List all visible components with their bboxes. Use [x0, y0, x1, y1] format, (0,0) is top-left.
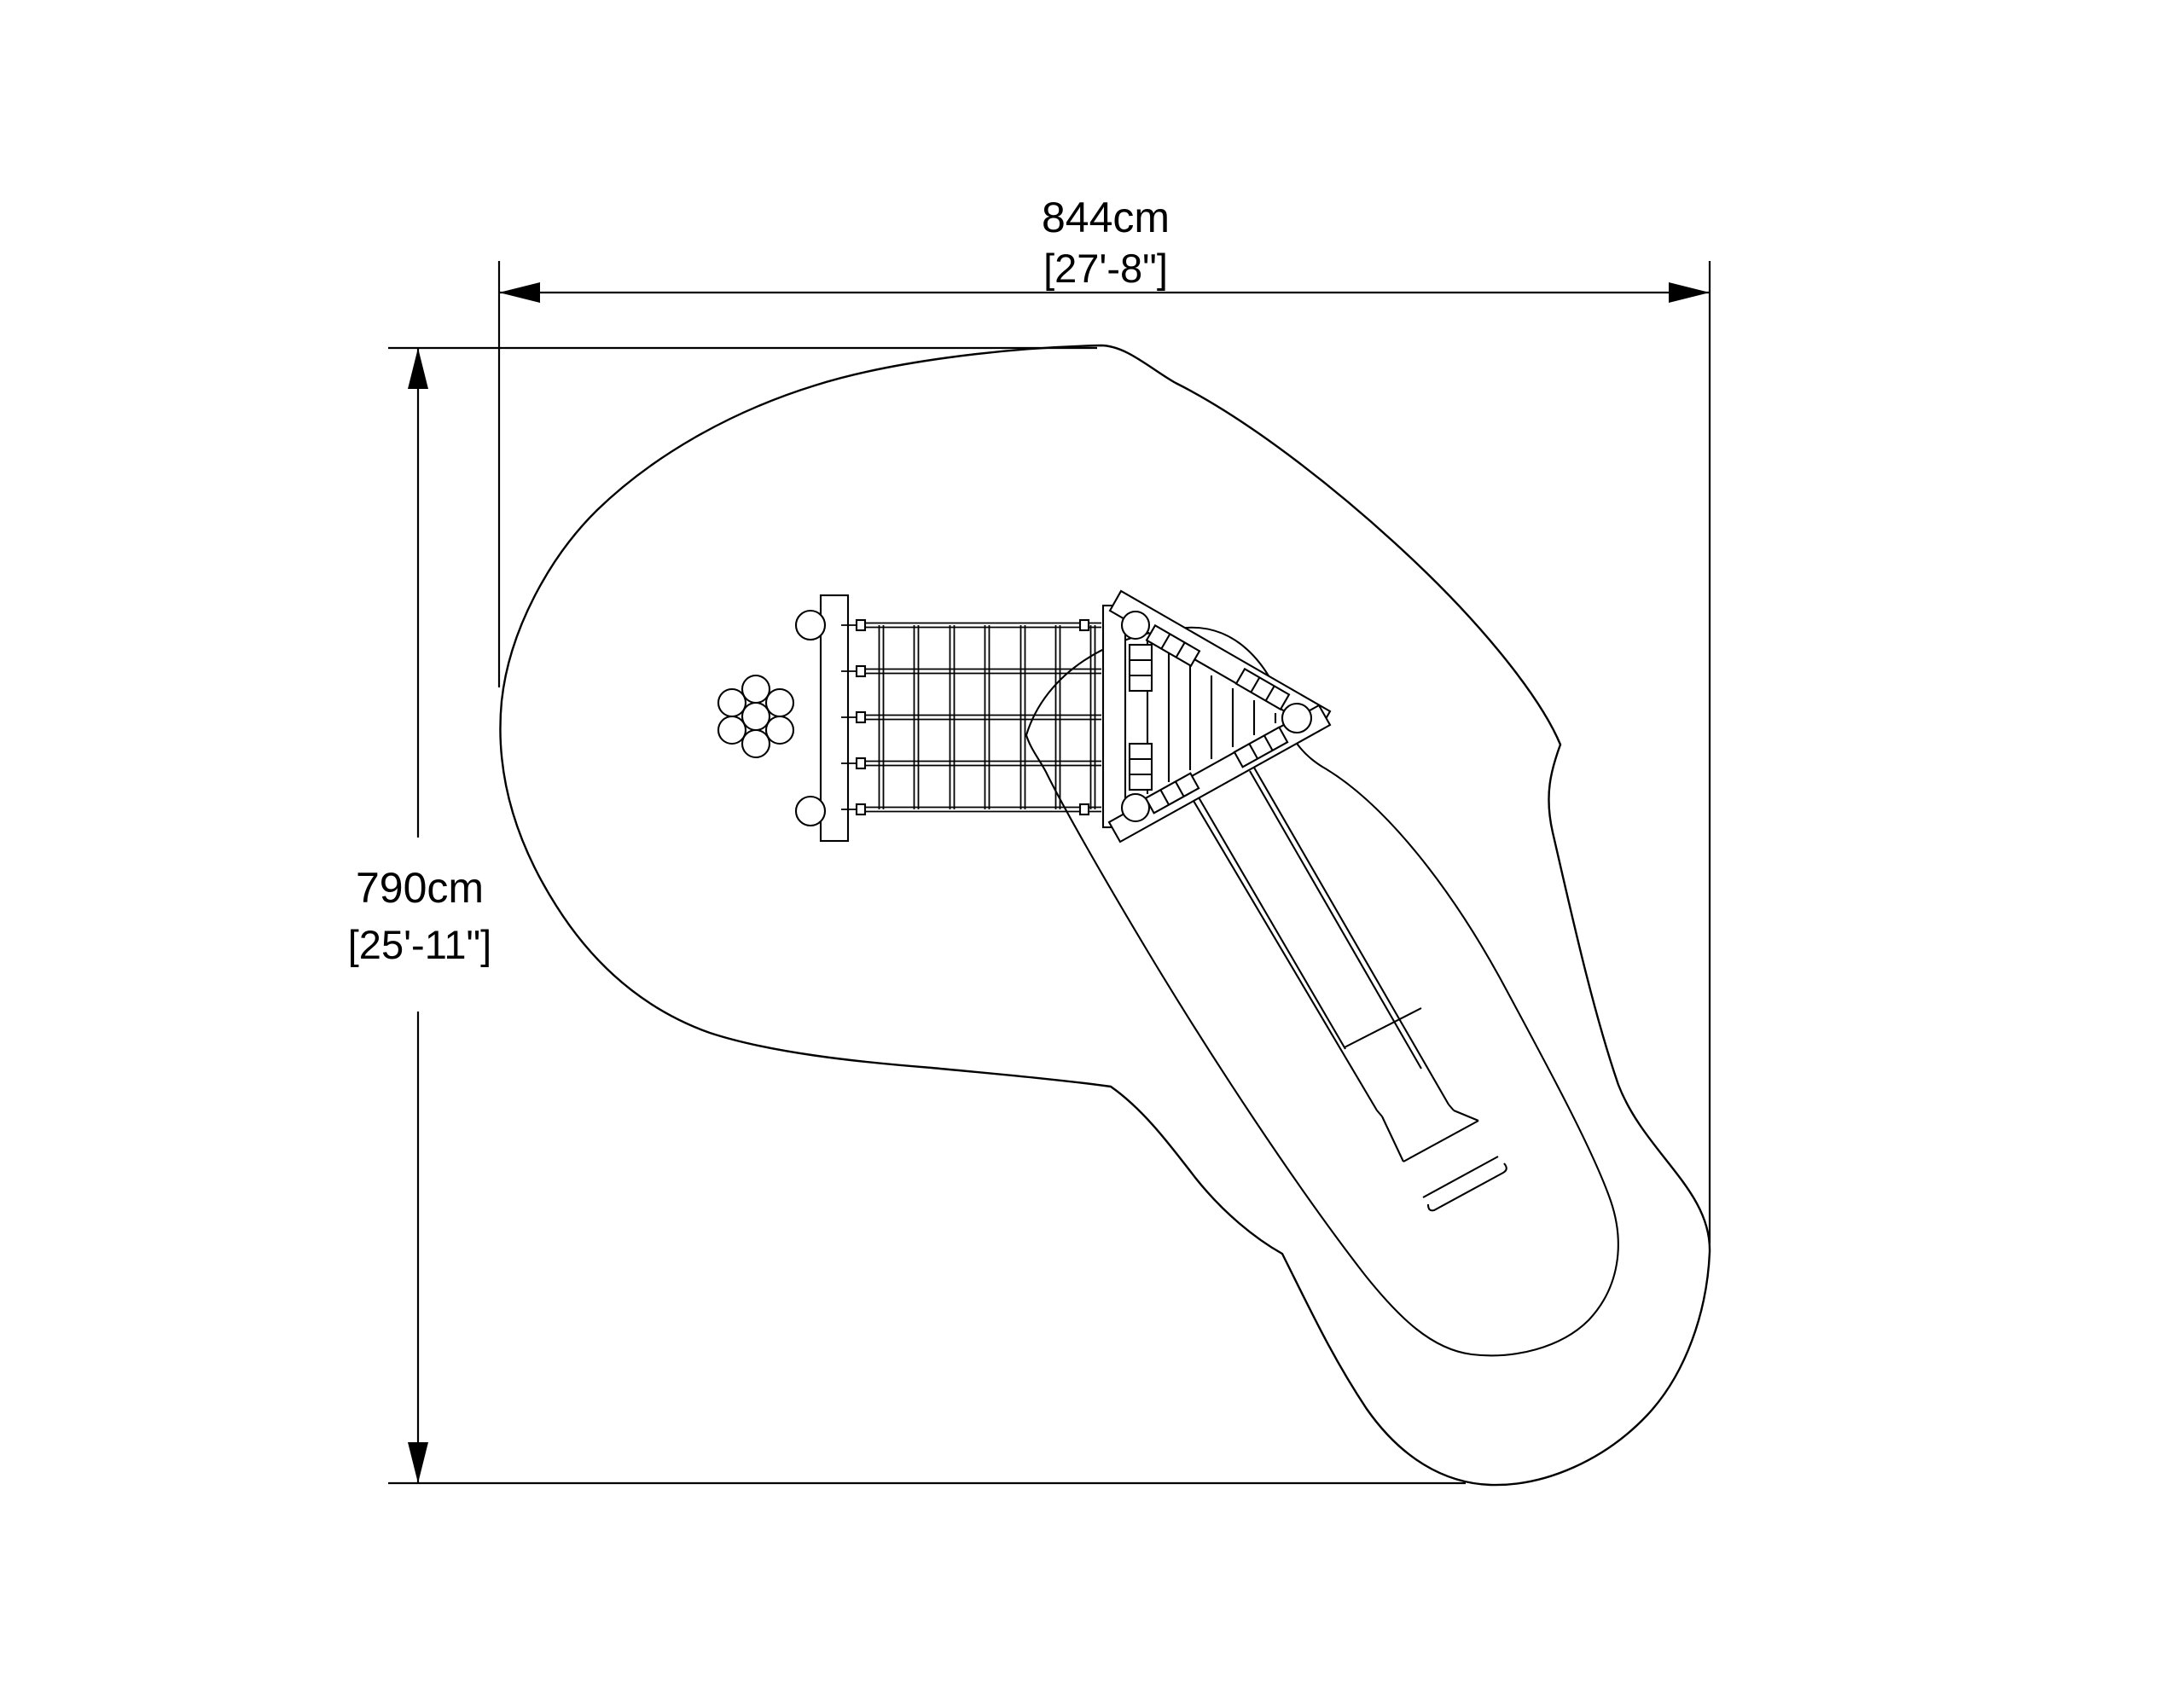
width-imperial-label: [27'-8"]	[1043, 246, 1168, 291]
cleat-frame	[1130, 645, 1152, 691]
platform-post-apex	[1282, 704, 1311, 733]
stepper-ball	[718, 716, 746, 744]
slide-rail-left-inner	[1199, 797, 1345, 1049]
slide-exit-lip-inner	[1423, 1157, 1498, 1197]
platform-edge-bar	[1103, 606, 1125, 827]
stepper-ball	[742, 675, 770, 703]
rope-clamp	[857, 666, 865, 676]
slide-rail-left-outer	[1194, 801, 1377, 1110]
climbing-net	[796, 595, 1101, 841]
slide-wall-left	[1382, 1116, 1403, 1162]
drawing-sheet: 844cm [27'-8"] 790cm [25'-11"]	[0, 0, 2184, 1687]
rope-clamp	[1080, 804, 1089, 815]
stepper-ball	[742, 730, 770, 757]
arrow-down-icon	[408, 1442, 428, 1483]
slide-crossbar	[1345, 1008, 1421, 1047]
cleat-frame	[1130, 744, 1152, 790]
arrow-left-icon	[499, 282, 540, 303]
rope-clamp	[1080, 620, 1089, 630]
step-cleat-stack-top	[1130, 645, 1152, 691]
rope-clamp	[857, 712, 865, 722]
stepper-ball	[766, 689, 793, 716]
rope-clamp	[857, 758, 865, 768]
net-vertical-ropes	[880, 625, 1095, 809]
slide-wall-right	[1454, 1110, 1478, 1121]
rope-clamp	[857, 804, 865, 815]
arrow-right-icon	[1669, 282, 1710, 303]
playground-plan-drawing: 844cm [27'-8"] 790cm [25'-11"]	[0, 0, 2184, 1687]
slide	[1194, 768, 1507, 1210]
step-cleat-stack-bottom	[1130, 744, 1152, 790]
flower-stepper	[718, 675, 793, 757]
net-rope-connectors	[857, 620, 1089, 815]
slide-rail-right-outer	[1254, 768, 1449, 1104]
safety-zone-outline	[500, 345, 1710, 1485]
rope-clamp	[857, 620, 865, 630]
net-horizontal-ropes	[841, 623, 1101, 812]
slide-rail-right-inner	[1250, 771, 1421, 1069]
height-imperial-label: [25'-11"]	[348, 922, 492, 967]
stepper-ball-center	[742, 703, 770, 730]
slide-rail-end	[1449, 1104, 1454, 1110]
height-metric-label: 790cm	[356, 864, 484, 912]
width-metric-label: 844cm	[1042, 194, 1170, 241]
slide-exit-lip	[1428, 1163, 1507, 1210]
stepper-ball	[766, 716, 793, 744]
arrow-up-icon	[408, 348, 428, 389]
net-anchor-post-bar	[821, 595, 848, 841]
net-post-top	[796, 611, 825, 640]
platform-post-top	[1122, 612, 1149, 639]
slide-exit-crossbar	[1403, 1121, 1478, 1162]
net-post-bottom	[796, 797, 825, 826]
vertical-dimension: 790cm [25'-11"]	[348, 348, 1466, 1483]
slide-rail-end	[1377, 1110, 1382, 1116]
stepper-ball	[718, 689, 746, 716]
triangle-platform	[1103, 591, 1330, 842]
